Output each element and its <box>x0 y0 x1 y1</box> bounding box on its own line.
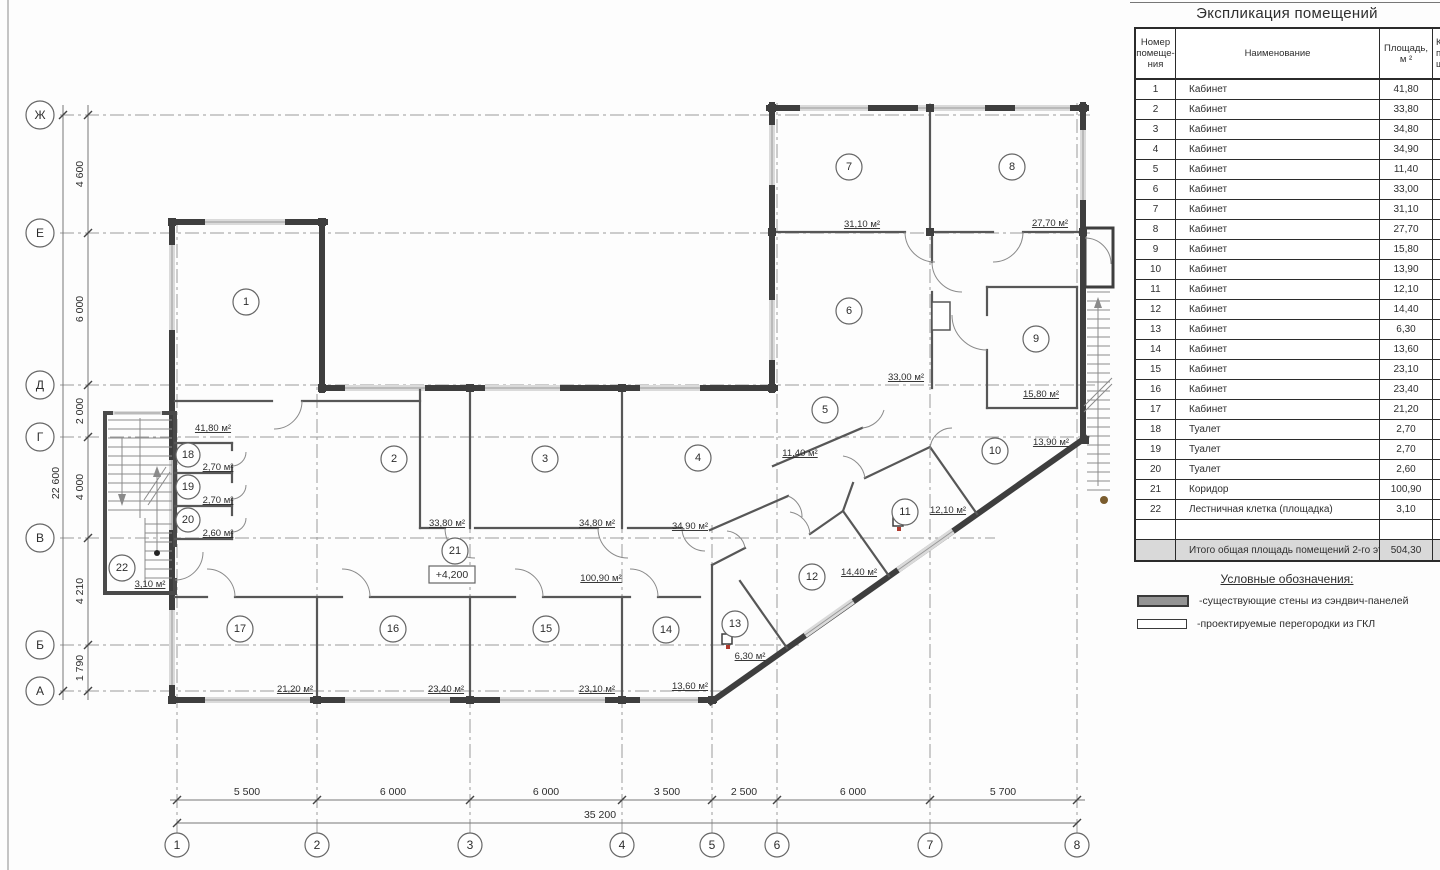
legend-item-label: -существующие стены из сэндвич-панелей <box>1199 595 1409 607</box>
axis-bubble: 6 <box>765 833 789 857</box>
svg-text:2,60 м²: 2,60 м² <box>203 528 234 539</box>
svg-text:13: 13 <box>729 618 741 630</box>
svg-text:9: 9 <box>1033 333 1039 345</box>
svg-text:6 000: 6 000 <box>840 786 866 798</box>
stair-landing-box <box>1085 228 1113 287</box>
svg-text:2: 2 <box>391 453 397 465</box>
room-bubble: 21 <box>442 538 468 564</box>
table-row: 20Туалет2,60 <box>1135 460 1440 480</box>
floor-plan: 4 600 6 000 2 000 4 000 4 210 1 790 22 6… <box>0 0 1135 870</box>
svg-text:4: 4 <box>619 838 626 852</box>
svg-text:6 000: 6 000 <box>380 786 406 798</box>
exterior-walls <box>172 105 1086 702</box>
windows <box>172 108 1083 700</box>
stair-arrow-down <box>118 494 126 506</box>
table-header: Номерпомеще-ния Наименование Площадь,м ²… <box>1135 28 1440 79</box>
axis-bubble: 5 <box>700 833 724 857</box>
svg-text:12,10 м²: 12,10 м² <box>930 505 966 516</box>
legend-title: Условные обозначения: <box>1134 572 1440 586</box>
svg-text:100,90 м²: 100,90 м² <box>580 573 621 584</box>
svg-text:2: 2 <box>314 838 321 852</box>
svg-text:4: 4 <box>695 452 701 464</box>
room-bubble: 19 <box>176 475 200 499</box>
svg-text:3: 3 <box>542 453 548 465</box>
axis-bubble: В <box>26 524 54 552</box>
svg-text:14,40 м²: 14,40 м² <box>841 567 877 578</box>
col-axis-bubbles: 1 2 3 4 5 6 7 8 <box>165 833 1089 857</box>
svg-text:23,10 м²: 23,10 м² <box>579 684 615 695</box>
axis-bubble: 8 <box>1065 833 1089 857</box>
svg-text:22 600: 22 600 <box>50 467 62 499</box>
interior-partitions <box>175 108 1083 700</box>
axis-bubble: Ж <box>26 101 54 129</box>
legend: Условные обозначения: -существующие стен… <box>1134 572 1440 641</box>
table-row-empty <box>1135 520 1440 540</box>
elevation-mark: +4,200 <box>429 566 475 583</box>
room-bubble: 13 <box>722 611 748 637</box>
svg-text:8: 8 <box>1009 161 1015 173</box>
svg-text:4 210: 4 210 <box>74 578 86 604</box>
columns <box>168 104 1089 704</box>
table-row: 14Кабинет13,60 <box>1135 340 1440 360</box>
svg-text:7: 7 <box>927 838 934 852</box>
drawing-sheet: 4 600 6 000 2 000 4 000 4 210 1 790 22 6… <box>0 0 1440 870</box>
room-bubble: 2 <box>381 446 407 472</box>
svg-text:34,90 м²: 34,90 м² <box>672 521 708 532</box>
svg-text:12: 12 <box>806 571 818 583</box>
table-row: 11Кабинет12,10 <box>1135 280 1440 300</box>
svg-text:20: 20 <box>182 514 194 526</box>
table-row: 13Кабинет6,30 <box>1135 320 1440 340</box>
axis-bubble: Б <box>26 631 54 659</box>
svg-text:Д: Д <box>36 378 44 392</box>
table-row: 7Кабинет31,10 <box>1135 200 1440 220</box>
col-header-number: Номерпомеще-ния <box>1135 28 1176 79</box>
svg-text:15: 15 <box>540 623 552 635</box>
svg-text:6,30 м²: 6,30 м² <box>735 651 766 662</box>
svg-text:33,00 м²: 33,00 м² <box>888 372 924 383</box>
svg-text:22: 22 <box>116 562 128 574</box>
axis-bubble: 4 <box>610 833 634 857</box>
svg-text:2,70 м²: 2,70 м² <box>203 495 234 506</box>
svg-text:31,10 м²: 31,10 м² <box>844 219 880 230</box>
axis-bubble: Д <box>26 371 54 399</box>
svg-text:4 000: 4 000 <box>74 474 86 500</box>
table-row: 8Кабинет27,70 <box>1135 220 1440 240</box>
table-title: Экспликация помещений <box>1134 5 1440 22</box>
table-row: 17Кабинет21,20 <box>1135 400 1440 420</box>
axis-bubble: 2 <box>305 833 329 857</box>
svg-text:5: 5 <box>709 838 716 852</box>
svg-text:2 000: 2 000 <box>74 398 86 424</box>
room-bubble: 14 <box>653 617 679 643</box>
col-header-name: Наименование <box>1176 28 1380 79</box>
legend-item: -существующие стены из сэндвич-панелей <box>1134 595 1440 607</box>
svg-text:8: 8 <box>1074 838 1081 852</box>
svg-text:33,80 м²: 33,80 м² <box>429 518 465 529</box>
svg-text:10: 10 <box>989 445 1001 457</box>
partition-swatch <box>1137 619 1187 629</box>
room-bubble: 17 <box>227 616 253 642</box>
svg-text:11,40 м²: 11,40 м² <box>782 448 817 459</box>
stair-start-dot <box>154 550 160 556</box>
table-row: 16Кабинет23,40 <box>1135 380 1440 400</box>
room-bubble: 7 <box>836 154 862 180</box>
svg-text:6 000: 6 000 <box>74 296 86 322</box>
table-row: 1Кабинет41,80 <box>1135 79 1440 100</box>
legend-item-label: -проектируемые перегородки из ГКЛ <box>1197 618 1375 630</box>
room-bubble: 18 <box>176 443 200 467</box>
svg-text:2,70 м²: 2,70 м² <box>203 462 234 473</box>
svg-text:11: 11 <box>899 506 910 518</box>
axis-bubble: 3 <box>458 833 482 857</box>
svg-text:Е: Е <box>36 226 44 240</box>
svg-text:16: 16 <box>387 623 399 635</box>
room-bubble: 8 <box>999 154 1025 180</box>
axis-bubble: Г <box>26 423 54 451</box>
axis-bubble: Е <box>26 219 54 247</box>
svg-text:23,40 м²: 23,40 м² <box>428 684 464 695</box>
axis-bubble: 1 <box>165 833 189 857</box>
svg-text:6: 6 <box>774 838 781 852</box>
svg-text:5: 5 <box>822 404 828 416</box>
svg-text:13,90 м²: 13,90 м² <box>1033 437 1069 448</box>
table-row: 21Коридор100,90 <box>1135 480 1440 500</box>
table-row: 4Кабинет34,90 <box>1135 140 1440 160</box>
svg-text:5 700: 5 700 <box>990 786 1016 798</box>
svg-text:1: 1 <box>174 838 181 852</box>
room-bubble: 10 <box>982 438 1008 464</box>
total-label: Итого общая площадь помещений 2-го этажа… <box>1176 540 1380 562</box>
table-row: 19Туалет2,70 <box>1135 440 1440 460</box>
stair-arrow-up <box>153 466 161 477</box>
room-bubble: 3 <box>532 446 558 472</box>
svg-text:1 790: 1 790 <box>74 655 86 681</box>
room-bubbles: 1 2 3 4 5 6 7 8 9 10 11 12 13 14 15 16 1… <box>109 154 1049 643</box>
table-row: 9Кабинет15,80 <box>1135 240 1440 260</box>
svg-text:6 000: 6 000 <box>533 786 559 798</box>
room-bubble: 16 <box>380 616 406 642</box>
table-row: 12Кабинет14,40 <box>1135 300 1440 320</box>
room-bubble: 6 <box>836 298 862 324</box>
table-total-row: Итого общая площадь помещений 2-го этажа… <box>1135 540 1440 562</box>
fire-escape-stair <box>1084 228 1113 504</box>
svg-text:19: 19 <box>182 481 194 493</box>
svg-text:3,10 м²: 3,10 м² <box>135 579 166 590</box>
room-bubble: 20 <box>176 508 200 532</box>
room-bubble: 5 <box>812 397 838 423</box>
total-value: 504,30 <box>1380 540 1433 562</box>
svg-text:Б: Б <box>36 638 44 652</box>
stair-ground-dot <box>1100 496 1108 504</box>
svg-text:2 500: 2 500 <box>731 786 757 798</box>
existing-wall-swatch <box>1137 595 1189 607</box>
room-bubble: 9 <box>1023 326 1049 352</box>
table-row: 10Кабинет13,90 <box>1135 260 1440 280</box>
svg-text:В: В <box>36 531 44 545</box>
room-bubble: 4 <box>685 445 711 471</box>
table-row: 15Кабинет23,10 <box>1135 360 1440 380</box>
svg-text:15,80 м²: 15,80 м² <box>1023 389 1059 400</box>
table-row: 2Кабинет33,80 <box>1135 100 1440 120</box>
svg-text:13,60 м²: 13,60 м² <box>672 681 708 692</box>
room-bubble: 12 <box>799 564 825 590</box>
svg-text:4 600: 4 600 <box>74 161 86 187</box>
row-axis-bubbles: Ж Е Д Г В Б А <box>26 101 54 705</box>
svg-text:17: 17 <box>234 623 246 635</box>
room-bubble: 22 <box>109 555 135 581</box>
room-bubble: 1 <box>233 289 259 315</box>
stair-arrow-up <box>1094 297 1102 308</box>
svg-text:34,80 м²: 34,80 м² <box>579 518 615 529</box>
table-row: 22Лестничная клетка (площадка)3,10 <box>1135 500 1440 520</box>
svg-text:18: 18 <box>182 449 194 461</box>
svg-text:А: А <box>36 684 44 698</box>
svg-text:+4,200: +4,200 <box>436 569 469 581</box>
legend-item: -проектируемые перегородки из ГКЛ <box>1134 618 1440 630</box>
axis-bubble: А <box>26 677 54 705</box>
room-schedule-table: Номерпомеще-ния Наименование Площадь,м ²… <box>1134 27 1440 562</box>
svg-text:Г: Г <box>37 430 44 444</box>
svg-text:3 500: 3 500 <box>654 786 680 798</box>
room-bubble: 11 <box>892 499 918 525</box>
table-row: 6Кабинет33,00 <box>1135 180 1440 200</box>
col-header-category: Капомще <box>1433 28 1440 79</box>
axis-bubble: 7 <box>918 833 942 857</box>
svg-text:7: 7 <box>846 161 852 173</box>
sheet-top-line <box>1130 2 1440 3</box>
svg-text:21: 21 <box>449 545 461 557</box>
col-header-area: Площадь,м ² <box>1380 28 1433 79</box>
svg-text:Ж: Ж <box>34 108 45 122</box>
svg-text:35 200: 35 200 <box>584 809 616 821</box>
svg-text:14: 14 <box>660 624 672 636</box>
svg-text:5 500: 5 500 <box>234 786 260 798</box>
room-bubble: 15 <box>533 616 559 642</box>
table-row: 3Кабинет34,80 <box>1135 120 1440 140</box>
svg-text:27,70 м²: 27,70 м² <box>1032 218 1068 229</box>
doors <box>175 232 1023 597</box>
svg-text:21,20 м²: 21,20 м² <box>277 684 313 695</box>
svg-text:3: 3 <box>467 838 474 852</box>
room-area-labels: 41,80 м² 33,80 м² 34,80 м² 34,90 м² 11,4… <box>135 218 1069 695</box>
svg-text:41,80 м²: 41,80 м² <box>195 423 231 434</box>
svg-text:6: 6 <box>846 305 852 317</box>
svg-text:1: 1 <box>243 296 249 308</box>
table-row: 5Кабинет11,40 <box>1135 160 1440 180</box>
table-row: 18Туалет2,70 <box>1135 420 1440 440</box>
